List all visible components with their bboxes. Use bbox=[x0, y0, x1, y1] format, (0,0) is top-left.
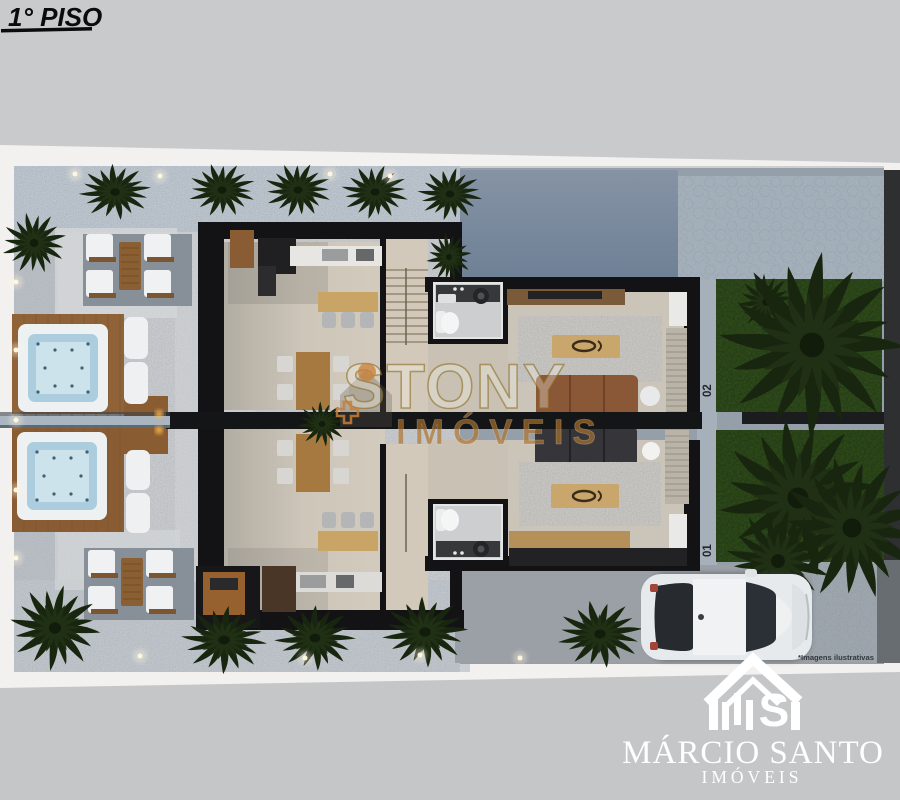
svg-text:MÁRCIO SANTO: MÁRCIO SANTO bbox=[622, 734, 884, 771]
svg-text:*Imagens ilustrativas: *Imagens ilustrativas bbox=[798, 653, 874, 662]
svg-text:IMÓVEIS: IMÓVEIS bbox=[702, 767, 803, 787]
svg-text:02: 02 bbox=[702, 384, 714, 397]
svg-text:S: S bbox=[759, 684, 790, 736]
svg-text:STONY: STONY bbox=[343, 352, 566, 422]
svg-text:IMÓVEIS: IMÓVEIS bbox=[396, 412, 605, 452]
svg-text:01: 01 bbox=[702, 544, 714, 557]
